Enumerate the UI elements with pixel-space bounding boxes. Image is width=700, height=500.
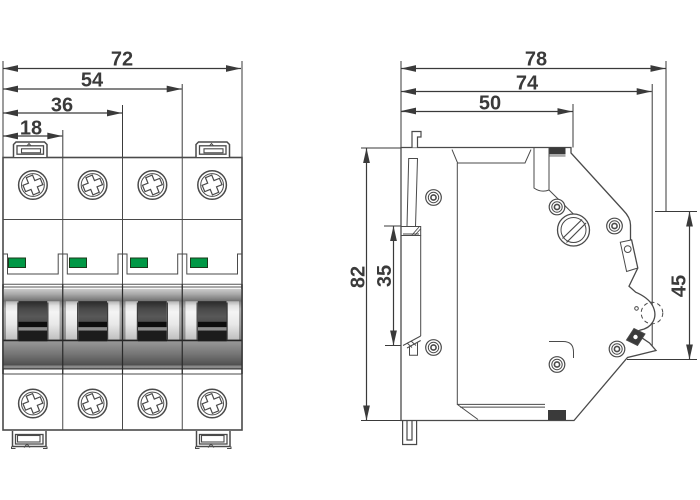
- svg-text:82: 82: [348, 266, 370, 288]
- svg-text:18: 18: [20, 118, 42, 140]
- svg-text:54: 54: [81, 70, 104, 92]
- svg-text:45: 45: [669, 275, 691, 297]
- svg-text:35: 35: [374, 265, 396, 287]
- svg-text:74: 74: [516, 73, 539, 95]
- svg-text:72: 72: [111, 49, 133, 71]
- svg-text:78: 78: [525, 49, 547, 71]
- svg-text:36: 36: [51, 95, 73, 117]
- svg-text:50: 50: [479, 93, 501, 115]
